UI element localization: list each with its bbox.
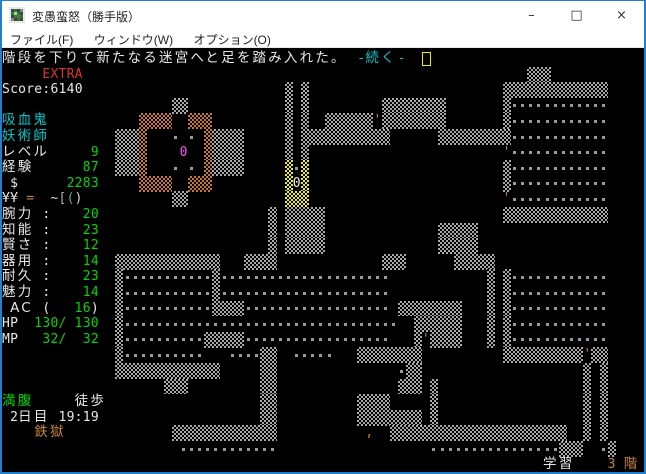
floor-dot [295, 292, 298, 295]
floor-dot [198, 292, 201, 295]
wall-block [438, 223, 478, 239]
floor-dot [295, 307, 298, 310]
wall-block [382, 113, 447, 129]
wall-block [503, 160, 511, 176]
floor-dot [247, 307, 250, 310]
floor-dot [562, 198, 565, 201]
wall-block [357, 410, 422, 426]
wall-block [115, 347, 123, 363]
floor-dot [303, 292, 306, 295]
wall-block [406, 363, 422, 379]
terminal-text: = [26, 191, 34, 207]
terminal-text: : [42, 238, 50, 254]
floor-dot [546, 182, 549, 185]
floor-dot [578, 120, 581, 123]
floor-dot [166, 323, 169, 326]
terminal-text: - [357, 51, 365, 67]
wall-block [212, 269, 220, 285]
wall-block [600, 425, 608, 441]
terminal-text: AC [10, 301, 33, 317]
floor-dot [263, 323, 266, 326]
floor-dot [432, 448, 435, 451]
terminal-text: 鉄獄 [34, 425, 65, 441]
floor-dot [287, 276, 290, 279]
floor-dot [190, 307, 193, 310]
floor-dot [602, 307, 605, 310]
wall-block [115, 332, 123, 348]
terminal-text: 続く [365, 51, 396, 67]
wall-block [487, 316, 495, 332]
floor-dot [513, 276, 516, 279]
terminal-text: ( [42, 301, 50, 317]
open-door-glyph: ' [583, 347, 591, 363]
floor-dot [513, 136, 516, 139]
wall-block [268, 207, 276, 223]
wall-block [583, 425, 591, 441]
floor-dot [594, 292, 597, 295]
floor-dot [198, 307, 201, 310]
floor-dot [570, 338, 573, 341]
terminal-text: Score:6140 [2, 82, 83, 98]
terminal-text: 32 [83, 332, 99, 348]
floor-dot [255, 448, 258, 451]
floor-dot [279, 307, 282, 310]
floor-dot [352, 292, 355, 295]
wall-block [115, 316, 123, 332]
floor-dot [287, 307, 290, 310]
floor-dot [174, 354, 177, 357]
floor-dot [271, 292, 274, 295]
floor-dot [279, 276, 282, 279]
floor-dot [368, 276, 371, 279]
floor-dot [134, 338, 137, 341]
floor-dot [562, 167, 565, 170]
floor-dot [529, 448, 532, 451]
floor-dot [263, 292, 266, 295]
wall-block [503, 82, 608, 98]
floor-dot [570, 198, 573, 201]
floor-dot [174, 136, 177, 139]
wall-block [285, 129, 293, 145]
wall-block [398, 301, 463, 317]
floor-dot [554, 323, 557, 326]
menu-window[interactable]: ウィンドウ(W) [86, 29, 181, 48]
menu-options[interactable]: オプション(O) [186, 29, 279, 48]
terminal-text: 3 [608, 457, 616, 473]
floor-dot [198, 276, 201, 279]
wall-block [301, 82, 309, 98]
floor-dot [521, 323, 524, 326]
floor-dot [602, 292, 605, 295]
wall-block [503, 301, 511, 317]
floor-dot [150, 307, 153, 310]
floor-dot [344, 276, 347, 279]
floor-dot [223, 323, 226, 326]
floor-dot [384, 292, 387, 295]
floor-dot [311, 323, 314, 326]
terminal-text: 14 [83, 254, 99, 270]
floor-dot [570, 104, 573, 107]
floor-dot [602, 104, 605, 107]
open-door-glyph: ' [503, 191, 511, 207]
floor-dot [231, 323, 234, 326]
floor-dot [182, 354, 185, 357]
floor-dot [529, 307, 532, 310]
floor-dot [126, 276, 129, 279]
wall-block [430, 410, 438, 426]
floor-dot [554, 151, 557, 154]
floor-dot [311, 354, 314, 357]
terminal-text: 32/ [42, 332, 66, 348]
floor-dot [231, 354, 234, 357]
floor-dot [368, 338, 371, 341]
floor-dot [255, 323, 258, 326]
floor-dot [263, 338, 266, 341]
floor-dot [142, 292, 145, 295]
floor-dot [602, 338, 605, 341]
game-terminal: '0'0''', 階段を下りて新たなる迷宮へと足を踏み入れた。-続く-EXTRA… [2, 48, 644, 473]
floor-dot [319, 307, 322, 310]
floor-dot [602, 120, 605, 123]
terminal-text: 23 [83, 269, 99, 285]
floor-dot [150, 323, 153, 326]
floor-dot [441, 448, 444, 451]
wall-block [285, 98, 293, 114]
floor-dot [529, 323, 532, 326]
floor-dot [602, 323, 605, 326]
floor-dot [554, 276, 557, 279]
floor-dot [537, 167, 540, 170]
floor-dot [586, 151, 589, 154]
floor-dot [182, 307, 185, 310]
wall-block [503, 113, 511, 129]
wall-block [212, 129, 244, 145]
floor-dot [239, 354, 242, 357]
terminal-text: 魅力 [2, 285, 33, 301]
floor-dot [586, 120, 589, 123]
terminal-text: 腕力 [2, 207, 33, 223]
terminal-text: 130 [75, 316, 99, 332]
floor-dot [529, 151, 532, 154]
wall-block [285, 82, 293, 98]
floor-dot [190, 448, 193, 451]
floor-dot [360, 307, 363, 310]
floor-dot [554, 182, 557, 185]
wall-block [414, 332, 422, 348]
wall-block [172, 191, 188, 207]
floor-dot [513, 104, 516, 107]
floor-dot [586, 307, 589, 310]
floor-dot [594, 323, 597, 326]
floor-dot [570, 120, 573, 123]
floor-dot [570, 151, 573, 154]
floor-dot [239, 276, 242, 279]
floor-dot [319, 276, 322, 279]
floor-dot [529, 120, 532, 123]
floor-dot [134, 276, 137, 279]
floor-dot [150, 276, 153, 279]
window-controls: – □ × [509, 1, 644, 29]
wall-block [212, 301, 244, 317]
wall-block [454, 254, 494, 270]
floor-dot [489, 448, 492, 451]
terminal-text: : [42, 223, 50, 239]
floor-dot [594, 182, 597, 185]
terminal-text: : [42, 285, 50, 301]
wall-block [414, 316, 462, 332]
floor-dot [473, 448, 476, 451]
floor-dot [134, 354, 137, 357]
floor-dot [328, 307, 331, 310]
floor-dot [529, 136, 532, 139]
terminal-text: 12 [83, 238, 99, 254]
floor-dot [521, 276, 524, 279]
floor-dot [546, 120, 549, 123]
floor-dot [328, 276, 331, 279]
floor-dot [239, 323, 242, 326]
floor-dot [546, 292, 549, 295]
wall-block [212, 145, 244, 161]
wall-block [212, 285, 220, 301]
wall-block [268, 238, 276, 254]
floor-dot [554, 120, 557, 123]
wall-block [188, 113, 212, 129]
terminal-text: ¥¥ [2, 191, 18, 207]
wall-block [260, 347, 276, 363]
floor-dot [465, 448, 468, 451]
terminal-text: ) [75, 191, 83, 207]
open-door-glyph: ' [503, 145, 511, 161]
floor-dot [287, 292, 290, 295]
wall-block [260, 379, 276, 395]
wall-block [503, 316, 511, 332]
floor-dot [594, 120, 597, 123]
wall-block [503, 347, 584, 363]
wall-block [139, 113, 171, 129]
terminal-text: 階 [624, 457, 640, 473]
floor-dot [570, 167, 573, 170]
floor-dot [376, 323, 379, 326]
floor-dot [602, 151, 605, 154]
terminal-text: 16 [75, 301, 91, 317]
floor-dot [142, 354, 145, 357]
wall-block [301, 113, 309, 129]
floor-dot [190, 136, 193, 139]
floor-dot [134, 292, 137, 295]
wall-block [204, 129, 212, 145]
floor-dot [344, 292, 347, 295]
floor-dot [392, 323, 395, 326]
floor-dot [554, 198, 557, 201]
floor-dot [142, 338, 145, 341]
floor-dot [328, 354, 331, 357]
floor-dot [554, 292, 557, 295]
floor-dot [166, 292, 169, 295]
floor-dot [570, 323, 573, 326]
floor-dot [336, 338, 339, 341]
floor-dot [554, 448, 557, 451]
floor-dot [214, 323, 217, 326]
floor-dot [562, 338, 565, 341]
floor-dot [295, 167, 298, 170]
terminal-text: 器用 [2, 254, 33, 270]
wall-block [591, 347, 607, 363]
floor-dot [513, 448, 516, 451]
floor-dot [513, 198, 516, 201]
floor-dot [376, 292, 379, 295]
wall-block [301, 176, 309, 192]
floor-dot [578, 104, 581, 107]
terminal-text: : [42, 269, 50, 285]
wall-block [382, 254, 406, 270]
floor-dot [521, 136, 524, 139]
wall-block [285, 160, 293, 176]
floor-dot [303, 323, 306, 326]
floor-dot [158, 323, 161, 326]
floor-dot [247, 338, 250, 341]
terminal-text: レベル [2, 145, 49, 161]
maximize-button[interactable]: □ [554, 1, 599, 29]
floor-dot [319, 323, 322, 326]
floor-dot [336, 292, 339, 295]
floor-dot [279, 338, 282, 341]
floor-dot [578, 167, 581, 170]
text-cursor [422, 52, 431, 66]
terminal-text: ) [91, 301, 99, 317]
terminal-text: 賢さ [2, 238, 33, 254]
floor-dot [521, 151, 524, 154]
floor-dot [578, 151, 581, 154]
floor-dot [586, 292, 589, 295]
floor-dot [255, 354, 258, 357]
wall-block [204, 332, 244, 348]
floor-dot [546, 104, 549, 107]
close-button[interactable]: × [599, 1, 644, 29]
floor-dot [578, 307, 581, 310]
floor-dot [271, 448, 274, 451]
floor-dot [223, 292, 226, 295]
terminal-text: 階段を下りて新たなる迷宮へと足を踏み入れた。 [2, 51, 347, 67]
wall-block [487, 332, 495, 348]
floor-dot [360, 276, 363, 279]
floor-dot [134, 307, 137, 310]
floor-dot [529, 292, 532, 295]
floor-dot [521, 182, 524, 185]
floor-dot [303, 354, 306, 357]
floor-dot [279, 323, 282, 326]
wall-block [212, 160, 244, 176]
monster-0-white-glyph: 0 [293, 176, 301, 192]
minimize-button[interactable]: – [509, 1, 554, 29]
floor-dot [182, 338, 185, 341]
floor-dot [368, 307, 371, 310]
terminal-text: 87 [83, 160, 99, 176]
floor-dot [126, 307, 129, 310]
floor-dot [360, 338, 363, 341]
wall-block [285, 191, 309, 207]
floor-dot [529, 198, 532, 201]
floor-dot [311, 292, 314, 295]
floor-dot [384, 307, 387, 310]
floor-dot [295, 338, 298, 341]
floor-dot [126, 323, 129, 326]
app-icon [9, 7, 25, 23]
wall-block [382, 98, 447, 114]
floor-dot [554, 104, 557, 107]
floor-dot [239, 448, 242, 451]
floor-dot [602, 182, 605, 185]
floor-dot [578, 198, 581, 201]
floor-dot [586, 167, 589, 170]
floor-dot [562, 323, 565, 326]
floor-dot [537, 198, 540, 201]
terminal-text: 学習 [543, 457, 574, 473]
floor-dot [570, 136, 573, 139]
floor-dot [336, 307, 339, 310]
floor-dot [537, 120, 540, 123]
floor-dot [594, 307, 597, 310]
floor-dot [303, 276, 306, 279]
terminal-text: : [42, 254, 50, 270]
floor-dot [521, 120, 524, 123]
floor-dot [271, 338, 274, 341]
floor-dot [586, 338, 589, 341]
open-door-glyph: ' [373, 113, 381, 129]
monster-0-magenta-glyph: 0 [180, 145, 188, 161]
floor-dot [537, 323, 540, 326]
floor-dot [537, 136, 540, 139]
floor-dot [190, 323, 193, 326]
floor-dot [190, 167, 193, 170]
floor-dot [182, 448, 185, 451]
wall-block [503, 207, 608, 223]
open-door-glyph: ' [422, 332, 430, 348]
menu-bar: ファイル(F) ウィンドウ(W) オプション(O) [2, 29, 644, 48]
floor-dot [328, 323, 331, 326]
floor-dot [231, 292, 234, 295]
floor-dot [594, 198, 597, 201]
floor-dot [521, 104, 524, 107]
floor-dot [457, 448, 460, 451]
menu-file[interactable]: ファイル(F) [2, 29, 81, 48]
wall-block [164, 379, 188, 395]
floor-dot [247, 354, 250, 357]
floor-dot [174, 307, 177, 310]
floor-dot [513, 307, 516, 310]
floor-dot [513, 323, 516, 326]
floor-dot [360, 292, 363, 295]
wall-block [260, 410, 276, 426]
floor-dot [311, 276, 314, 279]
floor-dot [586, 136, 589, 139]
floor-dot [562, 104, 565, 107]
wall-block [503, 98, 511, 114]
floor-dot [239, 292, 242, 295]
floor-dot [206, 448, 209, 451]
floor-dot [150, 292, 153, 295]
floor-dot [174, 292, 177, 295]
wall-block [487, 269, 495, 285]
wall-block [115, 363, 220, 379]
floor-dot [352, 276, 355, 279]
terminal-text: ~ [50, 191, 58, 207]
floor-dot [271, 307, 274, 310]
wall-block [357, 347, 422, 363]
floor-dot [158, 354, 161, 357]
floor-dot [537, 448, 540, 451]
floor-dot [198, 323, 201, 326]
wall-block [430, 332, 462, 348]
